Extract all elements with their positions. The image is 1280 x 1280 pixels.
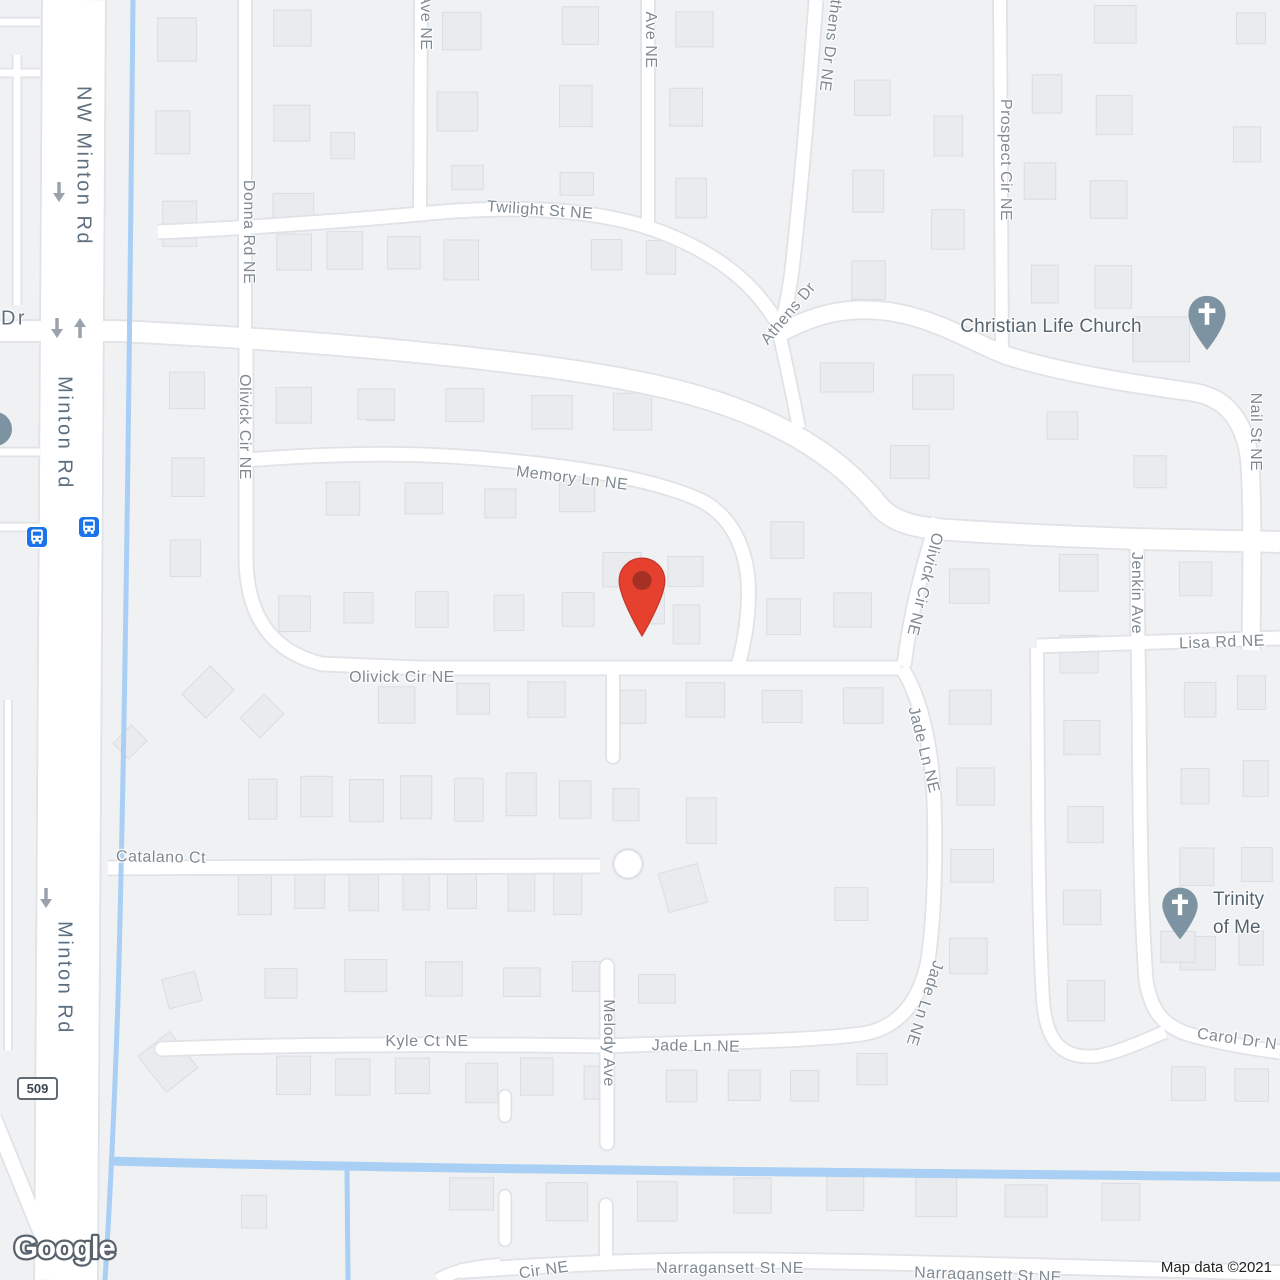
building-footprint [403,871,429,910]
building-footprint [916,1177,957,1217]
street-label-lisa-rd-ne: Lisa Rd NE [1179,633,1265,654]
building-footprint [240,694,284,738]
building-footprint [276,387,311,423]
poi-label-trinity[interactable]: Trinity of Me [1213,886,1264,942]
building-footprint [1179,562,1211,596]
building-footprint [613,393,651,430]
building-footprint [686,683,725,717]
building-footprint [450,1178,494,1210]
building-footprint [358,389,395,419]
building-footprint [457,683,490,714]
building-footprint [331,132,354,158]
building-footprint [388,237,421,269]
building-footprint [169,372,204,409]
building-footprint [494,595,524,630]
building-footprint [562,593,594,627]
building-footprint [395,1058,429,1093]
building-footprint [560,85,593,126]
street-label-jade-s: Jade Ln NE [652,1037,741,1057]
building-footprint [446,389,484,422]
street-label-minton-rd-1: Minton Rd [53,376,76,490]
building-footprint [1237,676,1265,710]
building-footprint [1234,127,1261,162]
church-pin-icon[interactable] [1160,886,1200,946]
building-footprint [666,1070,696,1102]
building-footprint [639,974,676,1003]
building-footprint [1235,1069,1269,1101]
building-footprint [265,968,297,998]
building-footprint [162,971,203,1009]
building-footprint [437,92,477,131]
building-footprint [521,1058,553,1095]
building-footprint [455,778,484,821]
building-footprint [686,798,716,844]
street-label-nail-st-ne: Nail St NE [1246,393,1264,472]
building-footprint [156,111,190,154]
building-footprint [1236,13,1265,44]
building-footprint [835,888,868,921]
building-footprint [344,593,373,623]
building-footprint [1096,95,1132,134]
svg-text:Google: Google [14,1230,116,1265]
building-footprint [345,960,387,992]
building-footprint [934,116,963,156]
street-label-narragansett-1: Narragansett St NE [656,1260,804,1278]
building-footprint [676,178,707,218]
building-footprint [378,687,414,723]
building-footprint [1181,768,1209,804]
building-footprint [771,522,804,559]
building-footprint [676,12,714,47]
building-footprint [1047,412,1078,439]
building-footprint [670,88,703,126]
street-label-ave-ne-2: Ave NE [641,12,659,69]
building-footprint [673,605,700,644]
building-footprint [857,1053,887,1084]
building-footprint [790,1071,818,1101]
building-footprint [853,170,884,212]
street-label-olivick-w: Olivick Cir NE [235,374,253,480]
street-label-prospect-cir-ne: Prospect Cir NE [996,99,1014,221]
building-footprint [637,1182,677,1221]
building-footprint [668,556,703,586]
building-footprint [1067,980,1104,1020]
building-footprint [336,1059,370,1095]
building-footprint [444,240,479,280]
street-label-donna-rd-ne: Donna Rd NE [239,180,257,284]
building-footprint [767,599,801,635]
street-label-melody-ave: Melody Ave [599,999,617,1086]
street-label-nw-minton-rd: NW Minton Rd [72,86,95,246]
building-footprint [452,165,484,189]
building-footprint [1095,266,1132,308]
building-footprint [1184,682,1216,717]
building-footprint [852,261,885,300]
building-footprint [728,1070,760,1100]
route-shield-509: 509 [17,1077,58,1100]
route-shield-number: 509 [27,1081,49,1096]
bus-stop-icon[interactable] [26,526,48,548]
street-label-minton-rd-2: Minton Rd [53,921,76,1035]
building-footprint [554,870,582,915]
building-footprint [277,1056,311,1094]
poi-label-trinity-line1: Trinity [1213,886,1264,914]
building-footprint [350,780,384,822]
building-footprint [405,483,443,514]
poi-label-trinity-line2: of Me [1213,914,1264,942]
street-label-dr: Dr [1,308,27,331]
building-footprint [1064,720,1100,754]
building-footprint [503,968,540,996]
building-footprint [508,873,535,911]
building-footprint [182,666,234,718]
building-footprint [843,688,882,723]
building-footprint [613,789,639,821]
building-footprint [1172,1067,1206,1101]
building-footprint [890,446,929,479]
building-footprint [301,776,332,816]
building-footprint [1024,163,1056,200]
street-label-ave-ne-1: Ave NE [416,0,434,50]
building-footprint [274,10,312,46]
building-footprint [762,690,802,722]
street-label-jenkin-ave: Jenkin Ave [1127,552,1145,634]
building-footprint [560,173,593,196]
building-footprint [559,781,591,818]
building-footprint [827,1177,864,1211]
building-footprint [170,540,200,577]
building-footprint [172,458,204,497]
building-footprint [466,1063,498,1103]
building-footprint [1102,1183,1140,1220]
building-footprint [1059,554,1098,591]
building-footprint [327,232,363,270]
building-footprint [562,7,598,45]
poi-label-christian-life-church[interactable]: Christian Life Church [960,316,1142,338]
building-footprint [855,80,891,115]
building-footprint [950,938,988,974]
building-footprint [949,569,989,603]
building-footprint [591,240,621,270]
building-footprint [659,864,708,913]
map-attribution: Map data ©2021 [1161,1259,1272,1276]
building-footprint [1063,890,1100,925]
building-footprint [274,105,310,141]
building-footprint [485,489,516,518]
building-footprint [1068,807,1103,843]
street-label-catalano-ct: Catalano Ct [116,848,206,868]
building-footprint [425,962,462,996]
building-footprint [834,593,872,627]
building-footprint [1005,1185,1047,1217]
building-footprint [1032,75,1061,113]
building-footprint [326,482,360,515]
building-footprint [1242,848,1273,882]
building-footprint [820,363,873,392]
building-footprint [546,1183,587,1221]
building-footprint [1243,761,1268,797]
building-footprint [646,241,675,274]
building-footprint [238,872,271,914]
building-footprint [1031,265,1058,303]
street-label-kyle-ct-ne: Kyle Ct NE [385,1033,468,1051]
building-footprint [1094,6,1136,43]
building-footprint [532,395,572,429]
building-footprint [734,1178,771,1213]
building-footprint [1134,456,1166,488]
street-label-olivick-s: Olivick Cir NE [349,669,455,687]
google-logo[interactable]: Google [10,1227,140,1274]
building-footprint [443,12,482,50]
building-footprint [1090,181,1127,219]
building-footprint [416,592,449,628]
building-footprint [957,768,994,805]
building-footprint [241,1195,266,1228]
building-footprint [279,596,311,632]
map-canvas[interactable]: NW Minton RdMinton RdMinton RdDrDonna Rd… [0,0,1280,1280]
red-location-pin[interactable] [617,556,667,644]
building-footprint [949,690,991,724]
building-footprint [913,375,954,409]
bus-stop-icon[interactable] [78,516,100,538]
building-footprint [113,725,147,759]
building-footprint [528,682,565,717]
building-footprint [277,234,312,270]
building-footprint [400,776,431,819]
building-footprint [158,18,197,61]
church-pin-icon[interactable] [1186,294,1228,357]
building-footprint [506,773,536,816]
building-footprint [932,210,965,250]
building-footprint [1180,848,1214,885]
building-footprint [248,779,276,819]
building-footprint [951,850,994,883]
